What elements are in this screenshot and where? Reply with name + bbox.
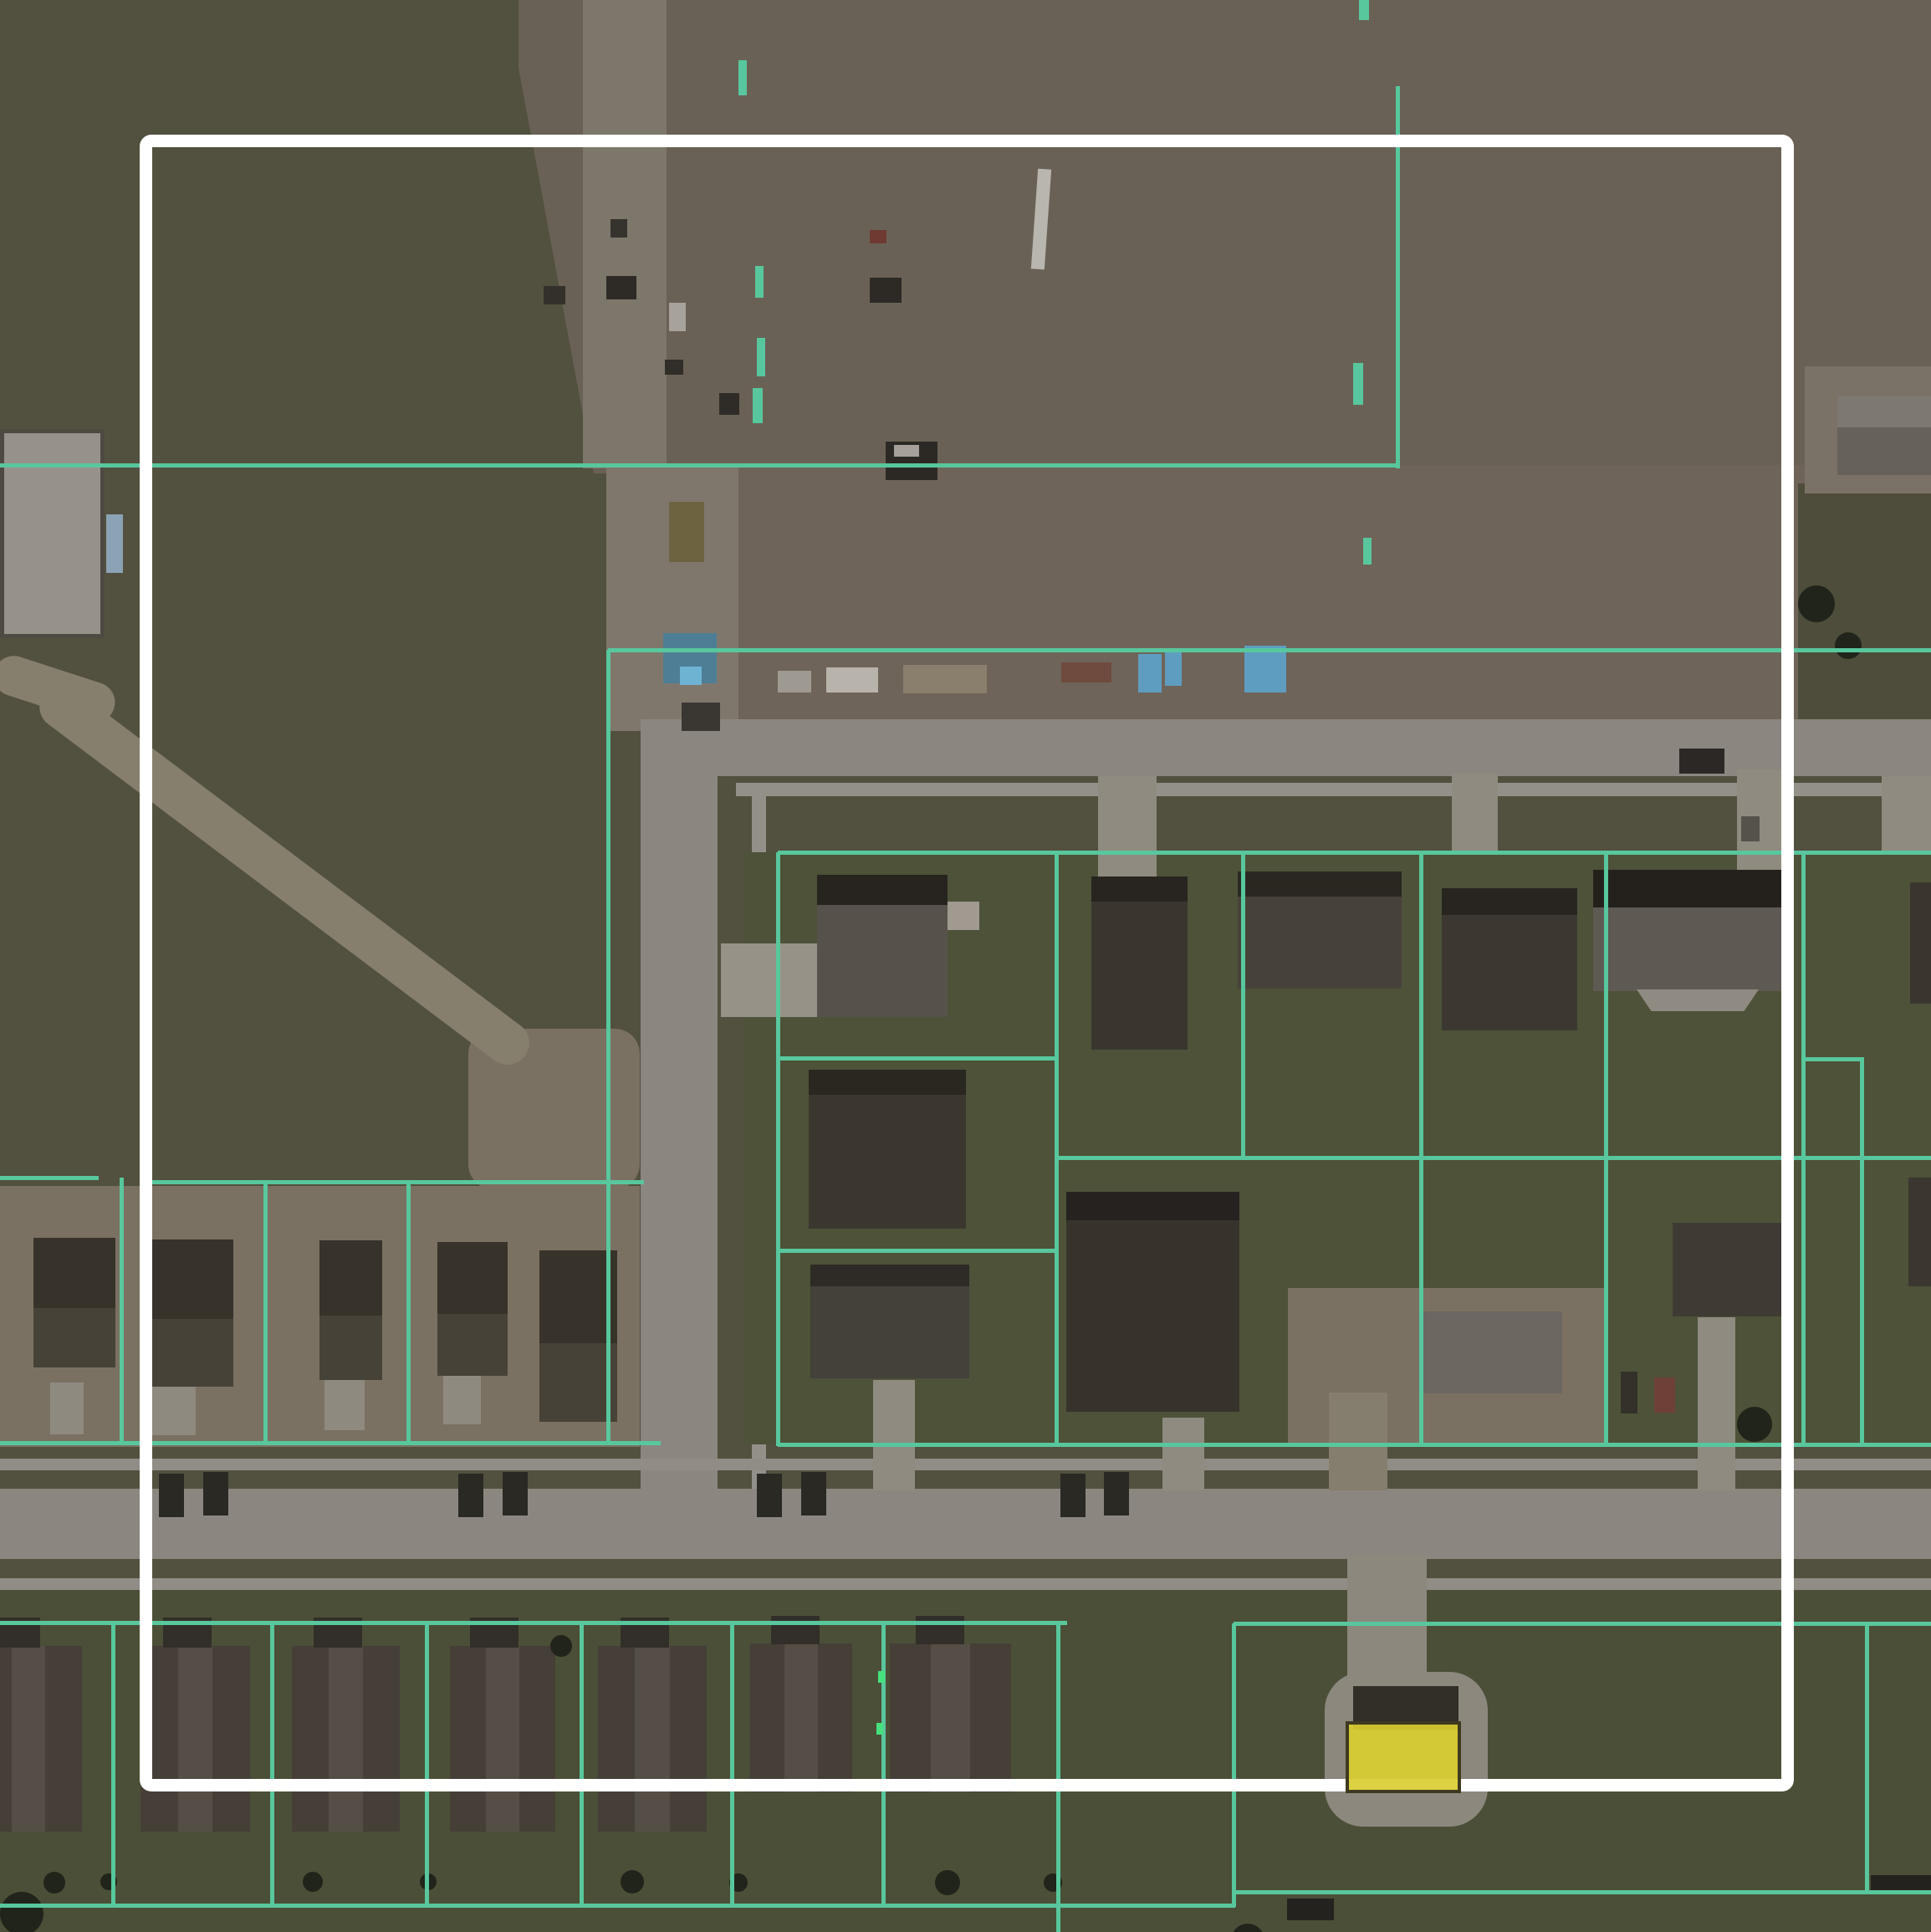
selection-roi-box[interactable] — [140, 135, 1794, 1791]
tree — [43, 1872, 65, 1894]
driveway-right-edge — [1882, 776, 1931, 852]
survey-mark — [738, 60, 747, 95]
parcel-boundary-line — [1803, 1057, 1863, 1061]
parcel-boundary-line — [1860, 1057, 1864, 1446]
tree — [303, 1872, 323, 1892]
car-dark — [1287, 1899, 1334, 1920]
tree — [621, 1870, 644, 1894]
blue-utility-mark — [106, 514, 123, 573]
left-building — [0, 429, 105, 638]
shed-roof-south — [1837, 427, 1931, 475]
tree — [0, 1892, 43, 1932]
parcel-boundary-line — [0, 1176, 99, 1180]
tree — [935, 1870, 960, 1895]
highlighted-building-annotation[interactable] — [1346, 1721, 1461, 1793]
house-footprint — [33, 1238, 115, 1367]
parcel-boundary-line — [1865, 1623, 1869, 1892]
parcel-boundary-line — [120, 1178, 124, 1444]
survey-mark — [1359, 0, 1369, 20]
roof-lower-facet — [33, 1308, 115, 1367]
house-footprint — [1908, 1178, 1931, 1286]
shed-roof-north — [1837, 396, 1931, 427]
tree — [1798, 585, 1835, 622]
parcel-boundary-line — [1234, 1890, 1931, 1894]
townhouse-footprint — [0, 1646, 82, 1832]
parcel-boundary-line — [111, 1623, 115, 1907]
house-footprint — [1910, 882, 1931, 1004]
parcel-boundary-line — [1801, 852, 1806, 1446]
tree — [1835, 632, 1862, 659]
patio-footprint — [50, 1383, 84, 1434]
map-canvas[interactable] — [0, 0, 1931, 1932]
parcel-boundary-line — [0, 1904, 1235, 1908]
roof-ridge-facet — [12, 1646, 46, 1832]
